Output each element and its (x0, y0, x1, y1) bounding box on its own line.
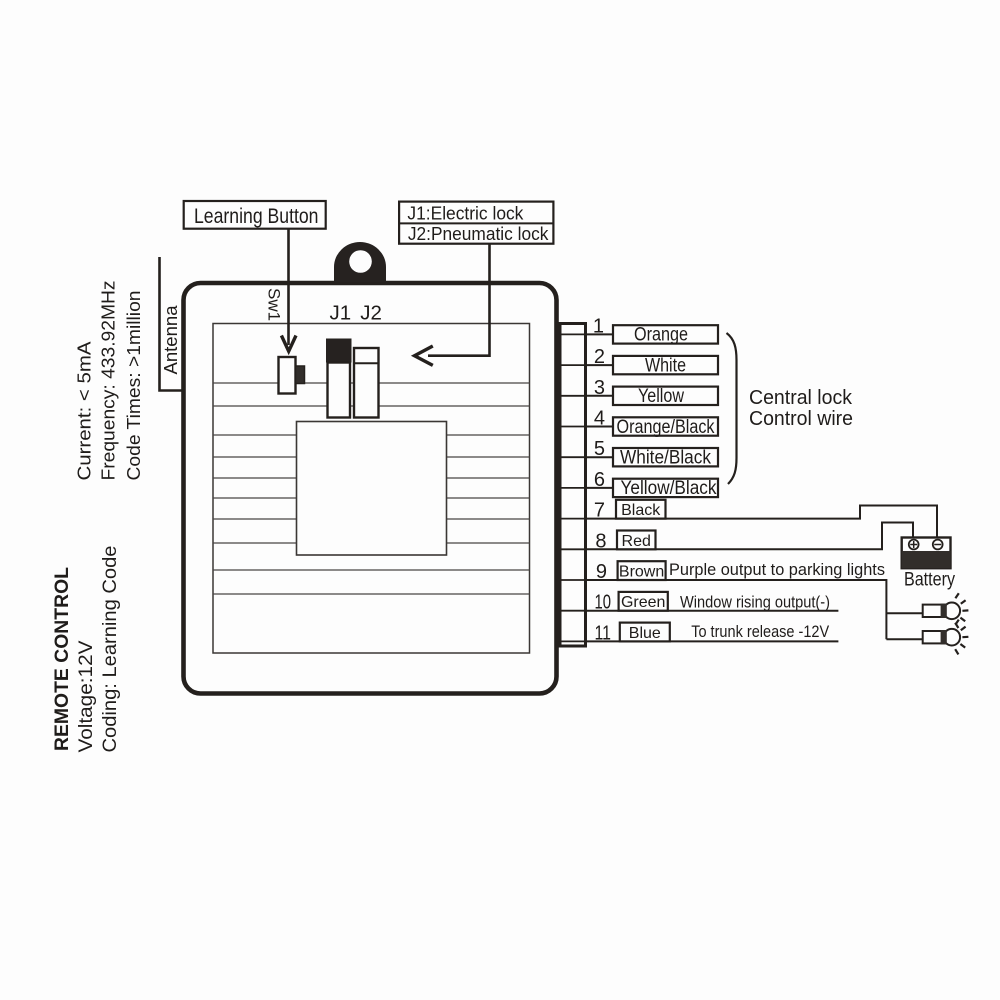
svg-text:Sw1: Sw1 (265, 288, 284, 321)
svg-text:White/Black: White/Black (620, 448, 711, 469)
svg-text:Orange: Orange (634, 325, 688, 346)
svg-text:11: 11 (595, 622, 612, 644)
svg-text:5: 5 (594, 438, 605, 460)
svg-text:Coding: Learning Code: Coding: Learning Code (100, 546, 121, 753)
svg-text:White: White (645, 355, 686, 376)
svg-text:Green: Green (621, 594, 665, 611)
svg-text:Purple output to parking light: Purple output to parking lights (669, 560, 885, 579)
svg-text:4: 4 (594, 408, 605, 430)
svg-text:Yellow: Yellow (638, 386, 684, 407)
svg-text:J1: J1 (330, 302, 352, 325)
svg-text:Yellow/Black: Yellow/Black (621, 478, 717, 499)
svg-text:Brown: Brown (619, 564, 664, 581)
svg-text:8: 8 (595, 530, 606, 552)
svg-text:Current: < 5mA: Current: < 5mA (75, 342, 95, 481)
svg-text:9: 9 (596, 561, 607, 583)
svg-text:6: 6 (594, 469, 605, 491)
svg-text:Code Times: >1million: Code Times: >1million (124, 291, 144, 481)
svg-text:10: 10 (595, 592, 612, 614)
svg-text:J2: J2 (360, 302, 382, 325)
svg-text:Red: Red (622, 533, 651, 550)
svg-text:Orange/Black: Orange/Black (617, 417, 715, 438)
svg-text:Black: Black (621, 502, 661, 519)
svg-text:Learning Button: Learning Button (194, 205, 319, 228)
svg-text:Antenna: Antenna (161, 304, 181, 374)
svg-text:Battery: Battery (904, 570, 955, 591)
svg-text:3: 3 (594, 377, 605, 399)
svg-text:Window rising output(-): Window rising output(-) (680, 593, 830, 611)
svg-text:Blue: Blue (629, 625, 661, 642)
svg-text:To trunk release -12V: To trunk release -12V (691, 622, 830, 641)
svg-text:Frequency: 433.92MHz: Frequency: 433.92MHz (99, 281, 119, 481)
svg-text:Central lock: Central lock (749, 386, 853, 409)
svg-text:REMOTE CONTROL: REMOTE CONTROL (52, 567, 73, 751)
svg-text:Voltage:12V: Voltage:12V (76, 640, 97, 752)
svg-text:J1:Electric lock: J1:Electric lock (407, 202, 524, 223)
svg-text:Control wire: Control wire (749, 407, 853, 430)
svg-text:J2:Pneumatic lock: J2:Pneumatic lock (408, 223, 549, 244)
svg-text:1: 1 (593, 315, 604, 337)
svg-text:2: 2 (594, 346, 605, 368)
svg-text:7: 7 (594, 500, 605, 522)
